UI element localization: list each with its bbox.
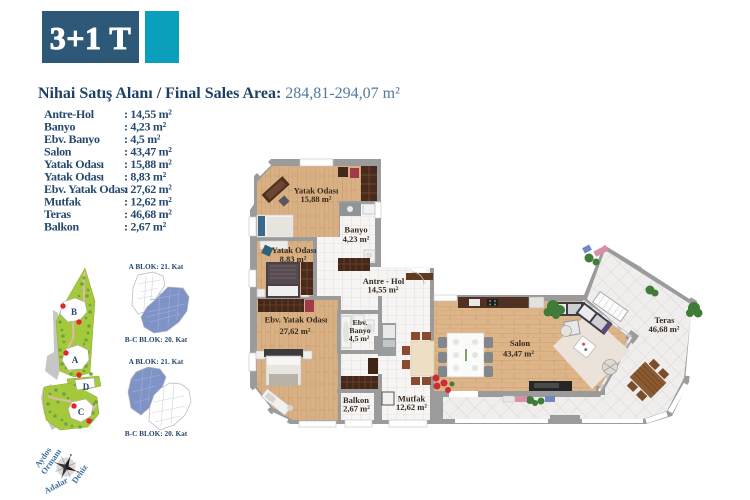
svg-text:Adalar: Adalar [42, 475, 69, 496]
svg-text:B: B [71, 307, 77, 317]
svg-text:A: A [72, 355, 79, 365]
svg-text:Ebv. Yatak Odası: Ebv. Yatak Odası [265, 315, 328, 325]
svg-text:43,47 m²: 43,47 m² [503, 349, 534, 359]
svg-text:B-C BLOK: 20. Kat: B-C BLOK: 20. Kat [125, 335, 188, 344]
svg-text:Nihai Satış Alanı / Final Sale: Nihai Satış Alanı / Final Sales Area: 28… [38, 85, 400, 102]
svg-text:A BLOK: 21. Kat: A BLOK: 21. Kat [129, 262, 184, 271]
svg-text:27,62 m²: 27,62 m² [280, 326, 311, 336]
svg-text:A BLOK: 21. Kat: A BLOK: 21. Kat [129, 357, 184, 366]
svg-text:Banyo: Banyo [344, 225, 367, 235]
svg-text:3+1 T: 3+1 T [50, 20, 132, 56]
svg-text:46,68 m²: 46,68 m² [649, 324, 680, 334]
svg-text:Balkon: Balkon [44, 220, 80, 234]
svg-text:12,62 m²: 12,62 m² [396, 402, 427, 412]
svg-text:4,23 m²: 4,23 m² [343, 234, 370, 244]
svg-text:D: D [83, 382, 90, 392]
svg-text:B-C BLOK: 20. Kat: B-C BLOK: 20. Kat [125, 429, 188, 438]
svg-text:: 2,67 m²: : 2,67 m² [124, 220, 167, 234]
svg-text:4,5 m²: 4,5 m² [349, 334, 370, 343]
svg-text:Salon: Salon [510, 338, 531, 348]
svg-text:8,83 m²: 8,83 m² [280, 254, 307, 264]
svg-text:C: C [78, 407, 85, 417]
svg-text:14,55 m²: 14,55 m² [368, 285, 399, 295]
svg-text:15,88 m²: 15,88 m² [301, 194, 332, 204]
svg-text:2,67 m²: 2,67 m² [343, 404, 370, 414]
